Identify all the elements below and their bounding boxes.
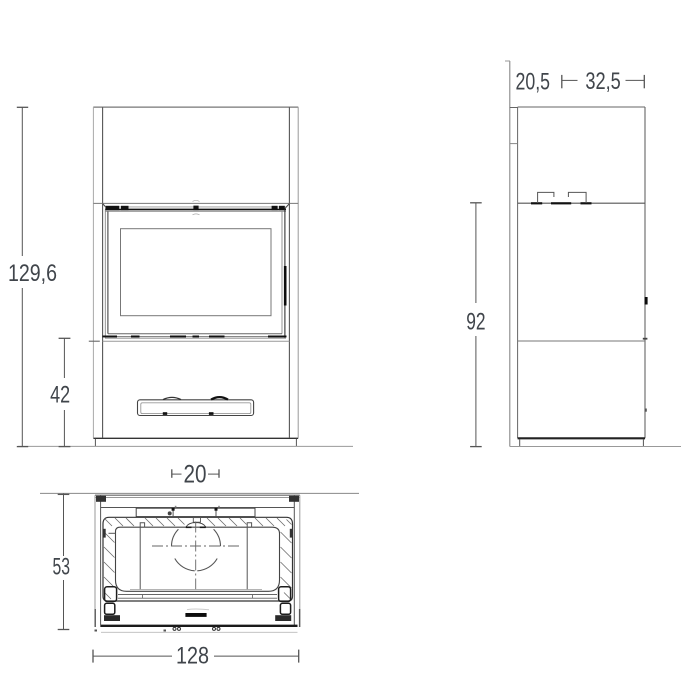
svg-text:129,6: 129,6	[8, 260, 57, 287]
svg-text:53: 53	[53, 554, 71, 581]
svg-text:20,5: 20,5	[516, 69, 551, 96]
svg-text:32,5: 32,5	[585, 68, 620, 95]
svg-text:92: 92	[466, 309, 485, 336]
svg-text:128: 128	[176, 643, 209, 670]
svg-text:20: 20	[184, 461, 207, 489]
svg-text:42: 42	[50, 381, 70, 408]
